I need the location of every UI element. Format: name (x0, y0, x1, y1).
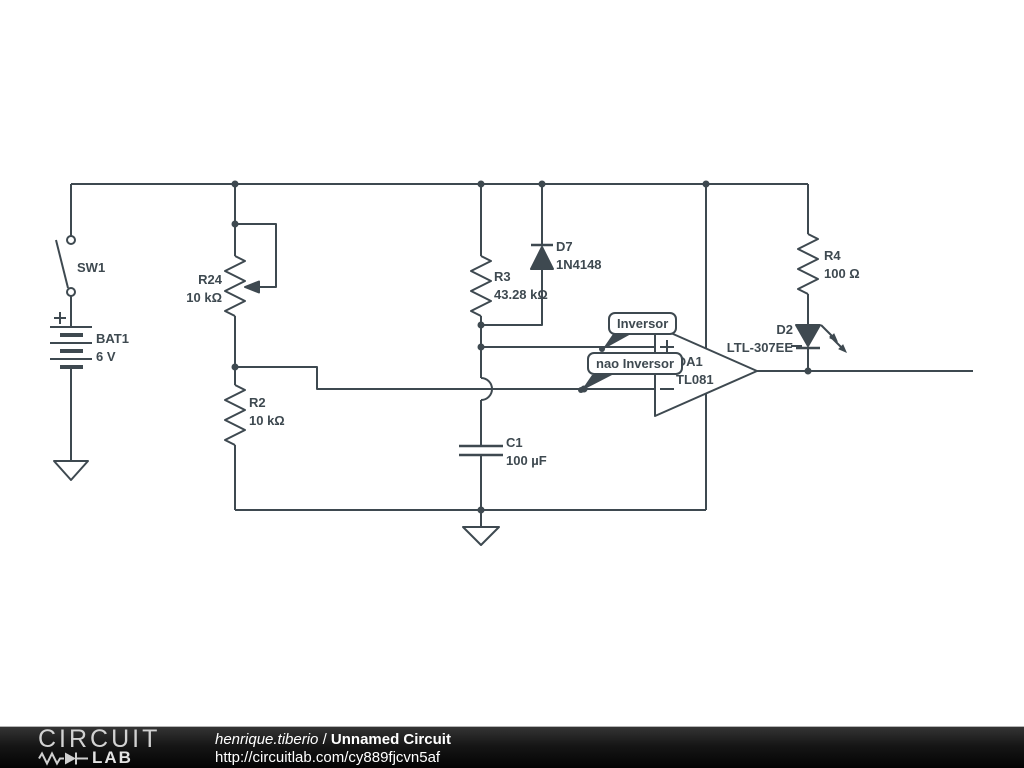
switch-sw1[interactable] (56, 236, 75, 296)
callout-noninverting[interactable]: nao Inversor (587, 352, 683, 375)
component-value: TL081 (676, 371, 714, 389)
label-r2[interactable]: R2 10 kΩ (249, 394, 285, 430)
schematic-canvas (0, 0, 1024, 726)
component-value: 43.28 kΩ (494, 286, 548, 304)
separator: / (318, 731, 331, 748)
author-name: henrique.tiberio (215, 731, 318, 748)
diode-d7[interactable] (531, 245, 553, 269)
component-name: D2 (727, 321, 793, 339)
label-c1[interactable]: C1 100 µF (506, 434, 547, 470)
component-name: R4 (824, 247, 860, 265)
footer-bar: CIRCUIT LAB henrique.tiberio / Unnamed C… (0, 726, 1024, 768)
component-name: C1 (506, 434, 547, 452)
resistor-diode-icon (38, 751, 90, 766)
component-value: LTL-307EE (727, 339, 793, 357)
label-bat1[interactable]: BAT1 6 V (96, 330, 129, 366)
component-name: BAT1 (96, 330, 129, 348)
resistor-r4[interactable] (798, 234, 818, 294)
component-name: R24 (186, 271, 222, 289)
label-d7[interactable]: D7 1N4148 (556, 238, 602, 274)
component-value: 6 V (96, 348, 129, 366)
circuitlab-export-page: SW1 BAT1 6 V R24 10 kΩ R2 10 kΩ R3 43.28… (0, 0, 1024, 768)
label-d2[interactable]: D2 LTL-307EE (727, 321, 793, 357)
label-r24[interactable]: R24 10 kΩ (186, 271, 222, 307)
callout-inverting[interactable]: Inversor (608, 312, 677, 335)
label-sw1[interactable]: SW1 (77, 259, 105, 277)
ground-symbol-center[interactable] (463, 527, 499, 545)
component-name: SW1 (77, 259, 105, 277)
component-value: 100 µF (506, 452, 547, 470)
capacitor-c1[interactable] (459, 446, 503, 455)
ground-symbol-left[interactable] (54, 461, 88, 480)
resistor-r3[interactable] (471, 256, 491, 316)
component-value: 10 kΩ (249, 412, 285, 430)
wire-net[interactable] (71, 184, 973, 527)
label-r4[interactable]: R4 100 Ω (824, 247, 860, 283)
resistor-r2[interactable] (225, 385, 245, 445)
led-d2[interactable] (796, 325, 849, 355)
label-r3[interactable]: R3 43.28 kΩ (494, 268, 548, 304)
component-value: 1N4148 (556, 256, 602, 274)
component-name: D7 (556, 238, 602, 256)
component-value: 100 Ω (824, 265, 860, 283)
circuit-url: http://circuitlab.com/cy889fjcvn5af (215, 749, 451, 767)
logo-text-lab: LAB (92, 748, 133, 768)
footer-credits: henrique.tiberio / Unnamed Circuit http:… (215, 731, 451, 767)
potentiometer-r24[interactable] (225, 224, 276, 316)
component-name: R3 (494, 268, 548, 286)
component-name: R2 (249, 394, 285, 412)
component-value: 10 kΩ (186, 289, 222, 307)
author-title-line: henrique.tiberio / Unnamed Circuit (215, 731, 451, 749)
circuit-title: Unnamed Circuit (331, 731, 451, 748)
circuitlab-logo: CIRCUIT LAB (38, 728, 160, 768)
